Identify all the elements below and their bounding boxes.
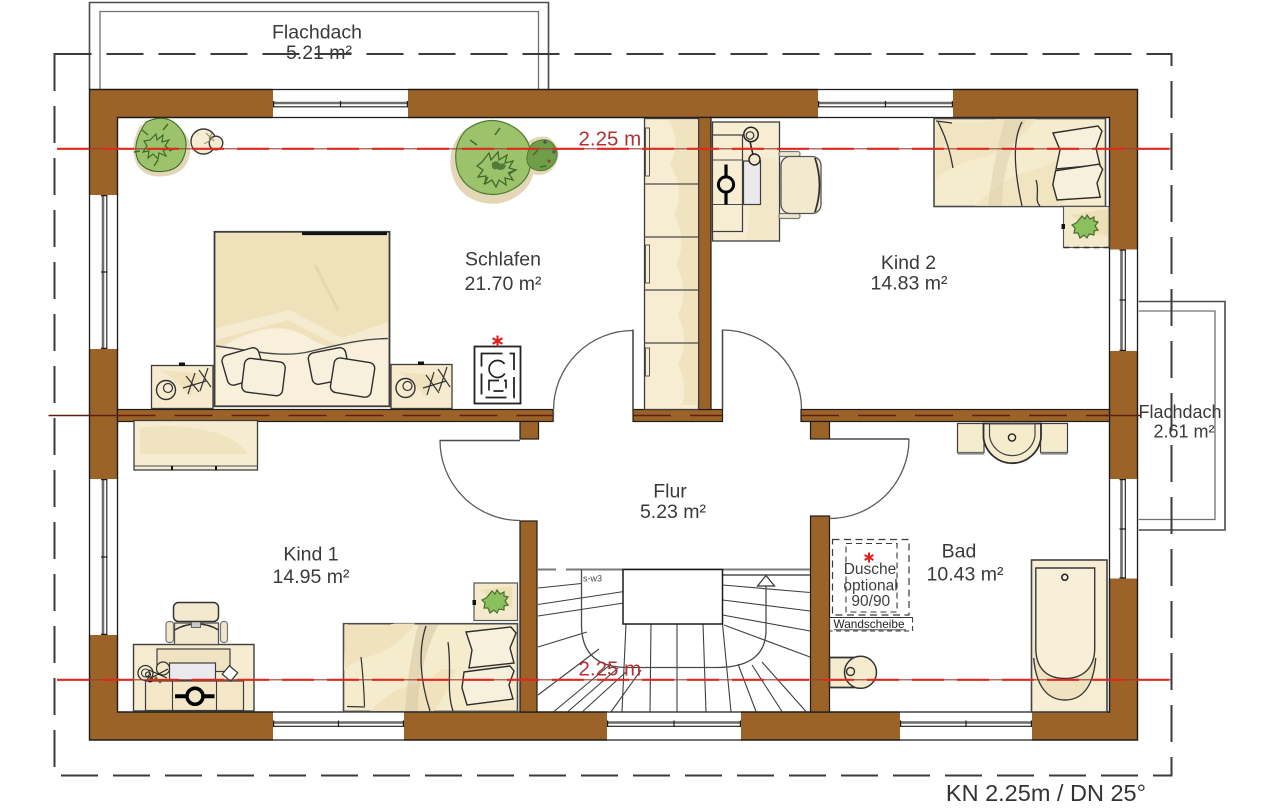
- svg-text:Dusche: Dusche: [844, 561, 897, 578]
- svg-text:Schlafen: Schlafen: [465, 249, 541, 271]
- svg-text:Bad: Bad: [942, 541, 977, 563]
- svg-text:14.83 m²: 14.83 m²: [871, 272, 948, 294]
- svg-text:Flachdach: Flachdach: [1138, 402, 1221, 422]
- svg-text:14.95 m²: 14.95 m²: [273, 566, 350, 588]
- svg-text:90/90: 90/90: [851, 593, 890, 610]
- svg-text:Kind 2: Kind 2: [881, 252, 936, 274]
- svg-text:21.70 m²: 21.70 m²: [465, 273, 542, 295]
- svg-text:Kind 1: Kind 1: [283, 544, 338, 566]
- svg-text:5.23 m²: 5.23 m²: [640, 501, 707, 523]
- svg-text:Wandscheibe: Wandscheibe: [834, 617, 905, 631]
- svg-text:KN 2.25m / DN 25°: KN 2.25m / DN 25°: [946, 780, 1146, 806]
- svg-text:2.25 m: 2.25 m: [579, 658, 642, 681]
- svg-text:5.21 m²: 5.21 m²: [286, 42, 353, 64]
- svg-text:s-w3: s-w3: [583, 574, 602, 584]
- svg-text:2.61 m²: 2.61 m²: [1153, 422, 1214, 442]
- svg-text:Flur: Flur: [653, 481, 687, 503]
- svg-text:10.43 m²: 10.43 m²: [927, 563, 1004, 585]
- svg-text:optional: optional: [843, 577, 897, 594]
- svg-text:Flachdach: Flachdach: [272, 22, 362, 44]
- svg-text:2.25 m: 2.25 m: [579, 128, 642, 151]
